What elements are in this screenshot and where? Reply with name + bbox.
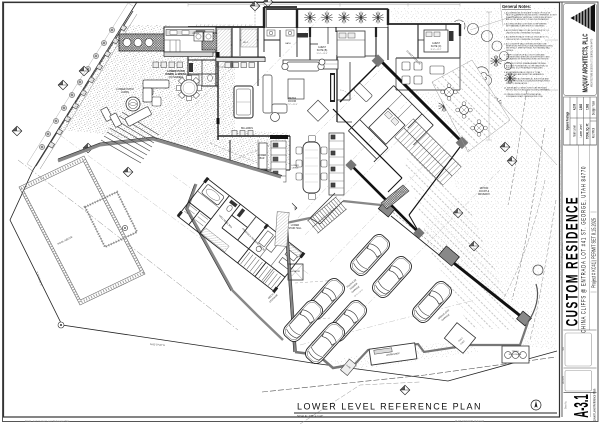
svg-text:TRASH: TRASH: [512, 350, 519, 353]
svg-text:Roof Pitch: Roof Pitch: [591, 127, 596, 138]
svg-text:BILLIARDS: BILLIARDS: [241, 127, 253, 130]
svg-text:Design / Team: Design / Team: [591, 100, 596, 115]
svg-text:2,883: 2,883: [578, 104, 583, 110]
svg-text:GUEST: GUEST: [432, 43, 441, 45]
svg-text:TOTAL SQ. FT.: TOTAL SQ. FT.: [585, 123, 590, 139]
svg-text:ENCLOSURE: ENCLOSURE: [509, 354, 522, 356]
svg-text:7,083: 7,083: [585, 104, 590, 110]
svg-text:LNDRY: LNDRY: [193, 33, 200, 35]
svg-text:PER IRC SECTION R314 AND R315: PER IRC SECTION R314 AND R315 REQUIREMEN…: [506, 89, 550, 92]
svg-text:Lower Level: Lower Level: [578, 124, 583, 137]
svg-text:ROOM: ROOM: [288, 99, 296, 103]
svg-text:(COVERED): (COVERED): [169, 75, 184, 79]
svg-text:DETAILS.: DETAILS.: [506, 49, 514, 52]
svg-text:DRIVEWAY: DRIVEWAY: [478, 193, 490, 196]
svg-text:KC41 - A-3.1 Lower Level Refer: KC41 - A-3.1 Lower Level Reference Plan: [25, 420, 70, 423]
svg-text:UNLESS NOTED OTHERWISE ON PLAN: UNLESS NOTED OTHERWISE ON PLANS.: [506, 31, 541, 34]
svg-text:CUSTOM RESIDENCE: CUSTOM RESIDENCE: [563, 196, 581, 326]
svg-text:LOWER: LOWER: [291, 225, 300, 227]
svg-text:MOTOR: MOTOR: [480, 188, 489, 190]
svg-text:COURT &: COURT &: [479, 191, 490, 193]
svg-text:SUITE (C): SUITE (C): [431, 46, 442, 48]
svg-text:LIVING: LIVING: [121, 90, 130, 94]
svg-text:Revisions: Revisions: [563, 375, 565, 384]
svg-text:FOR FIRST 10'-0" FROM FACE OF: FOR FIRST 10'-0" FROM FACE OF BUILDING.: [506, 67, 544, 70]
svg-text:Seal: Seal: [563, 347, 565, 351]
svg-text:SUITE (B): SUITE (B): [317, 50, 328, 52]
svg-text:GUEST: GUEST: [318, 47, 327, 49]
svg-text:11'-8" x 12'-2": 11'-8" x 12'-2": [431, 49, 442, 51]
svg-text:AND NOTIFY ARCHITECT OF ANY DI: AND NOTIFY ARCHITECT OF ANY DISCREPANCIE…: [506, 18, 549, 21]
svg-text:Square Footage: Square Footage: [565, 112, 570, 131]
svg-text:12'-4" x 13'-6": 12'-4" x 13'-6": [316, 53, 327, 55]
svg-text:Lower Level Reference Plan: Lower Level Reference Plan: [592, 389, 597, 422]
svg-text:W.I.C.: W.I.C.: [243, 42, 249, 44]
svg-text:A-3.1: A-3.1: [571, 394, 593, 418]
svg-text:CONCEALED DRAFT OPENINGS PER C: CONCEALED DRAFT OPENINGS PER CODE.: [506, 95, 544, 98]
svg-text:McQUAY ARCHITECTS, PLLC: McQUAY ARCHITECTS, PLLC: [583, 34, 590, 93]
svg-text:BAR: BAR: [260, 157, 265, 160]
svg-text:Main Level: Main Level: [572, 125, 577, 137]
svg-text:ELEVATOR: ELEVATOR: [290, 270, 300, 273]
svg-text:LOWER: LOWER: [258, 155, 267, 157]
svg-text:LIVING: LIVING: [292, 168, 299, 170]
svg-text:KACHINA CLIFFS @ ENTRADA LOT #: KACHINA CLIFFS @ ENTRADA LOT #41 ST. GEO…: [581, 166, 588, 340]
svg-text:PLOT: 8/15/2025 10:42 AM: PLOT: 8/15/2025 10:42 AM: [455, 420, 484, 423]
svg-text:SCALE: 1/8" = 1'-0": SCALE: 1/8" = 1'-0": [297, 414, 323, 418]
svg-text:4,100: 4,100: [572, 104, 577, 110]
svg-text:General Notes:: General Notes:: [502, 4, 531, 9]
svg-text:ARCHITECTURE & DESIGN | ST. GE: ARCHITECTURE & DESIGN | ST. GEORGE, UTAH…: [590, 38, 594, 87]
svg-text:Sheet No.: Sheet No.: [564, 401, 567, 409]
svg-text:ENGINEERED AND PERMITTED SEPAR: ENGINEERED AND PERMITTED SEPARATELY.: [506, 73, 545, 76]
svg-text:BATH: BATH: [285, 42, 291, 45]
svg-text:Project # KC41 | PERMIT SE: Project # KC41 | PERMIT SET 8.15.2025: [591, 218, 598, 288]
svg-text:PRIOR TO INSTALLATION.: PRIOR TO INSTALLATION.: [506, 82, 528, 85]
svg-text:WITH MANUFACTURER PRIOR TO ORD: WITH MANUFACTURER PRIOR TO ORDERING.: [506, 25, 545, 28]
svg-text:UNLESS NOTED OTHERWISE ON PLAN: UNLESS NOTED OTHERWISE ON PLANS.: [506, 38, 541, 41]
svg-text:LOWER LEVEL REFERENCE PLAN: LOWER LEVEL REFERENCE PLAN: [297, 402, 482, 412]
svg-text:STAIR HALL: STAIR HALL: [289, 227, 303, 230]
svg-text:EXCAVATION OR TRENCHING WORK O: EXCAVATION OR TRENCHING WORK ON THE SITE…: [506, 58, 549, 61]
svg-text:17'-2" x 21'-4": 17'-2" x 21'-4": [286, 104, 297, 106]
